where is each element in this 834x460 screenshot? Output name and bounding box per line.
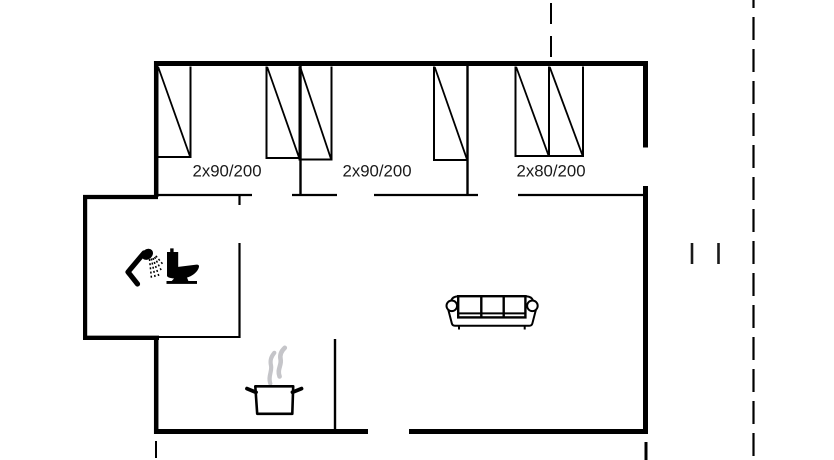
svg-text:2x90/200: 2x90/200	[193, 162, 262, 181]
svg-text:2x80/200: 2x80/200	[517, 162, 586, 181]
svg-text:2x90/200: 2x90/200	[343, 162, 412, 181]
